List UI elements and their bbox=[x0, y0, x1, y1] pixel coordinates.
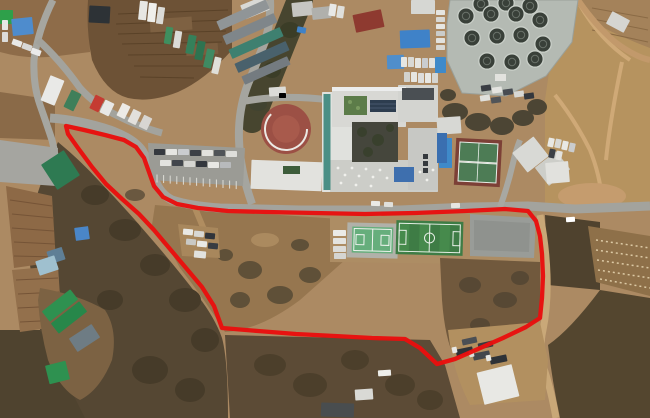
circular-tank bbox=[483, 6, 499, 22]
vehicle bbox=[429, 58, 435, 68]
south-shed-1 bbox=[321, 402, 354, 417]
vehicle bbox=[333, 230, 346, 236]
circular-tank bbox=[527, 51, 543, 67]
aerial-photo bbox=[0, 0, 650, 418]
court-midline bbox=[372, 229, 373, 251]
rooftop-blue-units bbox=[394, 167, 414, 182]
roof-garden-plant bbox=[348, 100, 352, 104]
north-parapet bbox=[332, 87, 406, 91]
vehicle bbox=[205, 233, 215, 240]
vehicle bbox=[208, 243, 218, 250]
gray-bldg-n1 bbox=[291, 1, 313, 17]
vehicle bbox=[166, 149, 177, 155]
circular-tank bbox=[504, 54, 520, 70]
solar-panels bbox=[370, 100, 396, 112]
vehicle bbox=[404, 72, 410, 82]
white-bldg-tennis-n bbox=[436, 116, 461, 135]
vehicle bbox=[451, 203, 460, 208]
soccer-field bbox=[396, 220, 464, 256]
vehicle bbox=[436, 24, 445, 29]
vehicle bbox=[183, 229, 193, 236]
vehicle bbox=[194, 231, 204, 238]
vehicle bbox=[566, 217, 575, 222]
vehicle bbox=[202, 150, 213, 156]
vehicle bbox=[418, 73, 424, 83]
roof-garden-plant bbox=[356, 106, 360, 110]
vehicle bbox=[411, 72, 417, 82]
vehicle bbox=[432, 73, 438, 83]
playground-equipment bbox=[279, 93, 286, 98]
concrete-pad-inner bbox=[474, 220, 530, 252]
vehicle bbox=[436, 31, 445, 36]
vehicle bbox=[378, 370, 391, 377]
tank-facility-shed bbox=[495, 74, 506, 81]
vehicle bbox=[425, 73, 431, 83]
vehicle bbox=[154, 149, 165, 155]
vehicle bbox=[220, 162, 231, 168]
vehicle bbox=[178, 149, 189, 155]
vehicle bbox=[184, 161, 195, 167]
vehicle bbox=[415, 58, 421, 68]
vehicle bbox=[226, 151, 237, 157]
school-west-building bbox=[251, 160, 323, 191]
blue-roof-bldg-nw bbox=[11, 17, 34, 36]
aerial-photo-canvas bbox=[0, 0, 650, 418]
ne-wing-dark-roof bbox=[402, 88, 434, 100]
vehicle bbox=[436, 17, 445, 22]
circular-tank bbox=[508, 6, 524, 22]
vehicle bbox=[334, 253, 346, 259]
bare-patch bbox=[251, 233, 279, 247]
circular-tank bbox=[479, 53, 495, 69]
vehicle bbox=[172, 160, 183, 166]
west-building-green-patch bbox=[283, 166, 300, 174]
annex-hvac bbox=[423, 154, 428, 173]
east-trees bbox=[545, 215, 600, 290]
east-solar-strip bbox=[437, 133, 447, 163]
circular-tank bbox=[532, 12, 548, 28]
vehicle bbox=[186, 239, 196, 246]
white-bldg-e3 bbox=[545, 161, 570, 184]
vehicle bbox=[160, 160, 171, 166]
vehicle bbox=[436, 45, 445, 50]
vehicle bbox=[333, 238, 346, 244]
tennis-court bbox=[454, 138, 502, 187]
soccer-stripe bbox=[399, 222, 410, 252]
circular-tank bbox=[513, 27, 529, 43]
playground-inner bbox=[272, 115, 300, 143]
atrium-glass-strip bbox=[324, 94, 331, 190]
dark-barn-n bbox=[89, 5, 111, 23]
white-bldg-ne bbox=[411, 0, 435, 14]
circular-tank bbox=[464, 30, 480, 46]
vehicle bbox=[333, 246, 346, 252]
vehicle bbox=[408, 57, 414, 67]
vehicle bbox=[436, 10, 445, 15]
south-shed-2 bbox=[355, 388, 374, 400]
vehicle bbox=[2, 32, 8, 42]
circular-tank bbox=[535, 36, 551, 52]
blue-hut-1 bbox=[74, 226, 90, 241]
vehicle bbox=[422, 58, 428, 68]
vehicle bbox=[384, 202, 393, 207]
vehicle bbox=[401, 57, 407, 67]
vehicle bbox=[371, 201, 380, 206]
blue-pool-tanks bbox=[435, 57, 446, 73]
vehicle bbox=[190, 150, 201, 156]
multi-sport-court bbox=[347, 222, 399, 258]
vehicle bbox=[2, 20, 8, 30]
vehicle bbox=[214, 150, 225, 156]
circular-tank bbox=[458, 8, 474, 24]
soccer-stripe bbox=[439, 223, 450, 253]
vehicle bbox=[436, 38, 445, 43]
roof-garden bbox=[344, 96, 367, 115]
vehicle bbox=[196, 161, 207, 167]
vehicle bbox=[208, 162, 219, 168]
blue-roof-bldg-1 bbox=[400, 29, 431, 48]
vehicle bbox=[194, 250, 207, 258]
vehicle bbox=[197, 241, 207, 248]
circular-tank bbox=[489, 28, 505, 44]
